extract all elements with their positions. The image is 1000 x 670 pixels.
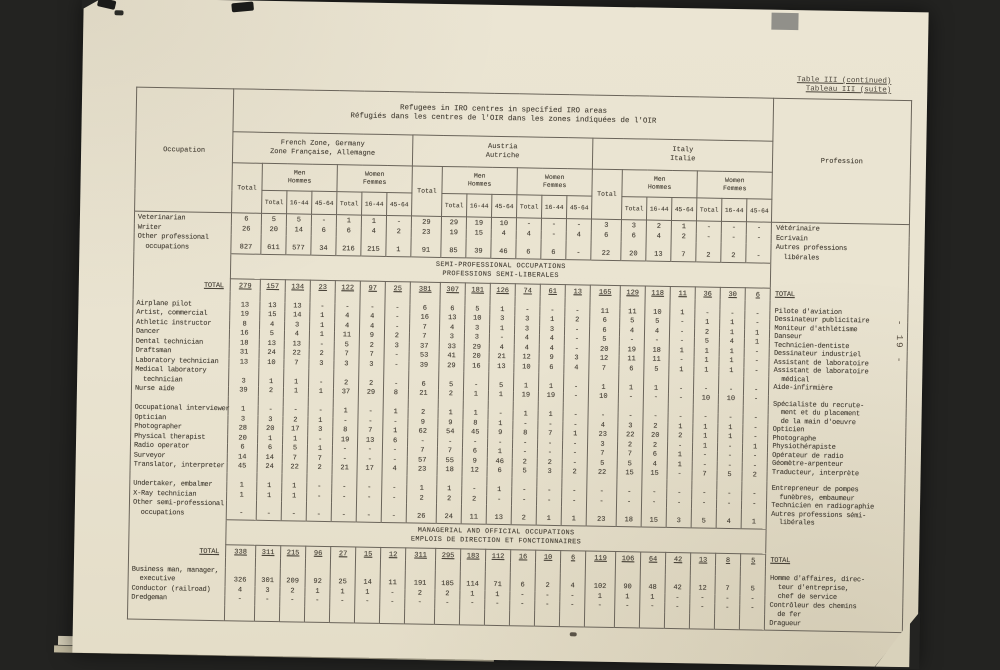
value-cell: 23 xyxy=(586,507,616,527)
value-cell: - xyxy=(585,602,615,612)
value-cell: 181 xyxy=(465,282,490,295)
value-cell: - xyxy=(380,598,405,608)
value-cell xyxy=(664,612,689,628)
value-cell: 42 xyxy=(665,574,690,593)
value-cell: 10 xyxy=(693,394,718,404)
value-cell: 5 xyxy=(617,460,642,470)
value-cell: 1 xyxy=(463,409,488,419)
value-cell: - xyxy=(405,598,435,608)
profession-cell: Vétérinaire Ecrivain Autres professions … xyxy=(771,222,910,265)
value-cell: 2 xyxy=(565,316,590,326)
value-cell: 8 xyxy=(333,426,358,436)
value-cell: 2 xyxy=(283,416,308,426)
value-cell: 23 xyxy=(310,280,335,293)
value-cell: - xyxy=(586,497,616,507)
women-group-header: Women Femmes xyxy=(337,165,412,193)
value-cell: 39 xyxy=(466,238,491,257)
value-cell: - xyxy=(566,240,591,259)
value-cell: 12 xyxy=(690,575,715,594)
value-cell xyxy=(459,609,484,625)
value-cell: - xyxy=(562,440,587,450)
value-cell: 6 xyxy=(642,450,667,460)
value-cell: - xyxy=(718,414,743,424)
value-cell: - xyxy=(742,490,767,500)
value-cell: 96 xyxy=(306,546,331,559)
value-cell: - xyxy=(489,334,514,344)
value-cell: 7 xyxy=(692,470,717,480)
value-cell: 16 xyxy=(464,362,489,372)
value-cell: 91 xyxy=(411,237,441,257)
value-cell: 5 xyxy=(740,553,766,566)
value-cell: 1 xyxy=(485,590,510,600)
value-cell: 338 xyxy=(226,544,256,558)
value-cell: 1 xyxy=(257,482,282,492)
value-cell: 5 xyxy=(438,371,463,390)
value-cell: 1 xyxy=(227,491,257,501)
value-cell: 12 xyxy=(381,547,406,560)
value-cell: - xyxy=(744,367,769,377)
value-cell xyxy=(590,298,620,308)
value-cell: 157 xyxy=(260,279,285,292)
value-cell: 3 xyxy=(618,422,643,432)
value-cell: - xyxy=(358,417,383,427)
value-cell: - xyxy=(357,484,382,494)
value-cell: 14 xyxy=(286,226,311,236)
value-cell: - xyxy=(641,498,666,508)
value-cell: 6 xyxy=(487,467,512,477)
value-cell xyxy=(330,559,355,569)
value-cell: 42 xyxy=(665,552,690,565)
value-cell: 19 xyxy=(441,228,466,238)
value-cell: 7 xyxy=(715,575,740,594)
value-cell: - xyxy=(696,233,721,243)
refugee-statistics-table: Occupation Refugees in IRO centres in sp… xyxy=(127,87,912,633)
value-cell: 183 xyxy=(461,548,486,561)
value-cell: - xyxy=(746,222,772,234)
value-cell: 1 xyxy=(538,373,563,392)
value-cell: - xyxy=(305,597,330,607)
value-cell: 1 xyxy=(588,374,618,394)
value-cell: 2 xyxy=(562,468,587,478)
value-cell: 4 xyxy=(360,313,385,323)
value-cell xyxy=(695,299,720,309)
value-cell: 1 xyxy=(437,485,462,495)
value-cell: 4 xyxy=(646,232,671,242)
value-cell xyxy=(335,293,360,303)
value-cell: 1 xyxy=(258,434,283,444)
value-cell: - xyxy=(615,602,640,612)
value-cell xyxy=(689,613,714,629)
value-cell: 1 xyxy=(693,432,718,442)
value-cell: 1 xyxy=(513,372,538,391)
value-cell: 3 xyxy=(464,333,489,343)
value-cell: 13 xyxy=(358,436,383,446)
value-cell: 14 xyxy=(227,453,257,463)
zone-header-italy: Italy Italie xyxy=(592,138,773,172)
value-cell xyxy=(357,474,382,484)
value-cell: 1 xyxy=(310,321,335,331)
value-cell: 21 xyxy=(408,389,438,399)
value-cell: - xyxy=(563,392,588,402)
value-cell: 1 xyxy=(355,588,380,598)
value-cell: 46 xyxy=(487,457,512,467)
value-cell: - xyxy=(332,445,357,455)
value-cell: 4 xyxy=(225,586,255,596)
value-cell: 11 xyxy=(620,308,645,318)
value-cell: 25 xyxy=(330,569,355,588)
value-cell: 1 xyxy=(669,365,694,375)
value-cell: 12 xyxy=(462,466,487,476)
value-cell xyxy=(333,398,358,408)
value-cell: 3 xyxy=(285,321,310,331)
value-cell: - xyxy=(565,307,590,317)
value-cell: 10 xyxy=(588,393,618,403)
value-cell: 3 xyxy=(308,426,333,436)
value-cell: 48 xyxy=(640,574,665,593)
value-cell: 13 xyxy=(229,358,259,368)
age-col-header: Total xyxy=(337,192,362,215)
men-group-header: Men Hommes xyxy=(622,170,697,198)
age-col-header: Total xyxy=(696,198,721,221)
value-cell: 1 xyxy=(305,587,330,597)
value-cell: - xyxy=(513,420,538,430)
value-cell: - xyxy=(383,370,408,389)
value-cell: 1 xyxy=(694,347,719,357)
value-cell: 10 xyxy=(535,550,560,563)
value-cell: - xyxy=(717,490,742,500)
value-cell: - xyxy=(563,373,588,392)
value-cell: 2 xyxy=(334,369,359,388)
value-cell: - xyxy=(358,408,383,418)
value-cell: 22 xyxy=(587,469,617,479)
value-cell: 23 xyxy=(588,431,618,441)
value-cell: 2 xyxy=(721,243,746,262)
value-cell: 7 xyxy=(334,350,359,360)
value-cell: - xyxy=(462,485,487,495)
value-cell xyxy=(254,605,279,621)
value-cell: 27 xyxy=(331,546,356,559)
value-cell: 7 xyxy=(284,359,309,369)
value-cell: - xyxy=(618,412,643,422)
value-cell: - xyxy=(743,395,768,405)
value-cell: 2 xyxy=(408,408,438,418)
age-col-header: 16-44 xyxy=(287,191,312,214)
value-cell: 13 xyxy=(259,339,284,349)
value-cell: 28 xyxy=(228,424,258,434)
value-cell: 13 xyxy=(230,301,260,311)
value-cell: - xyxy=(255,596,280,606)
value-cell: 1 xyxy=(259,368,284,387)
value-cell: 3 xyxy=(666,508,691,527)
value-cell: - xyxy=(717,461,742,471)
value-cell: 5 xyxy=(620,317,645,327)
value-cell xyxy=(643,403,668,413)
value-cell: 62 xyxy=(408,427,438,437)
value-cell: - xyxy=(535,601,560,611)
value-cell: 1 xyxy=(694,356,719,366)
value-cell xyxy=(718,404,743,414)
value-cell: 3 xyxy=(621,220,646,232)
value-cell: 114 xyxy=(460,571,485,590)
value-cell xyxy=(465,295,490,305)
value-cell: 4 xyxy=(334,322,359,332)
value-cell: - xyxy=(667,470,692,480)
value-cell xyxy=(618,403,643,413)
value-cell: - xyxy=(516,218,541,230)
value-cell: - xyxy=(435,599,460,609)
value-cell: 2 xyxy=(461,495,486,505)
value-cell: 15 xyxy=(642,469,667,479)
value-cell: - xyxy=(487,438,512,448)
value-cell xyxy=(405,560,435,570)
value-cell: - xyxy=(385,313,410,323)
value-cell: - xyxy=(332,455,357,465)
value-cell: 1 xyxy=(284,368,309,387)
value-cell: 5 xyxy=(740,576,766,595)
value-cell: 33 xyxy=(439,342,464,352)
value-cell: 22 xyxy=(284,349,309,359)
value-cell xyxy=(355,560,380,570)
value-cell: 4 xyxy=(489,343,514,353)
value-cell: - xyxy=(744,357,769,367)
value-cell: 381 xyxy=(410,281,440,295)
value-cell: 3 xyxy=(359,360,384,370)
page-curl-fold xyxy=(875,621,910,668)
value-cell: 7 xyxy=(437,447,462,457)
value-cell: - xyxy=(335,303,360,313)
value-cell: - xyxy=(667,441,692,451)
value-cell: - xyxy=(564,335,589,345)
value-cell xyxy=(410,294,440,304)
value-cell: 1 xyxy=(540,316,565,326)
value-cell: 6 xyxy=(539,363,564,373)
value-cell: - xyxy=(619,336,644,346)
value-cell: 122 xyxy=(335,280,360,293)
value-cell: 2 xyxy=(438,390,463,400)
value-cell: - xyxy=(668,394,693,404)
photo-artifact xyxy=(231,2,254,13)
value-cell xyxy=(535,563,560,573)
value-cell: - xyxy=(665,593,690,603)
value-cell: 6 xyxy=(541,240,566,259)
value-cell xyxy=(510,562,535,572)
value-cell: - xyxy=(541,218,566,230)
value-cell xyxy=(640,564,665,574)
value-cell: 1 xyxy=(719,366,744,376)
value-cell: 6 xyxy=(745,287,771,300)
value-cell xyxy=(308,397,333,407)
value-cell: - xyxy=(309,369,334,388)
value-cell: 9 xyxy=(539,354,564,364)
value-cell: 1 xyxy=(718,433,743,443)
value-cell xyxy=(614,612,639,628)
value-cell: 8 xyxy=(463,419,488,429)
value-cell: 3 xyxy=(228,415,258,425)
value-cell: 5 xyxy=(587,459,617,469)
value-cell: - xyxy=(407,437,437,447)
value-cell: 9 xyxy=(488,429,513,439)
age-col-header: Total xyxy=(517,195,542,218)
value-cell xyxy=(440,295,465,305)
value-cell: 30 xyxy=(720,287,745,300)
value-cell xyxy=(645,299,670,309)
value-cell: - xyxy=(310,302,335,312)
value-cell: - xyxy=(692,451,717,461)
value-cell: - xyxy=(360,303,385,313)
value-cell: - xyxy=(384,322,409,332)
value-cell: - xyxy=(665,603,690,613)
value-cell: 4 xyxy=(284,330,309,340)
value-cell: 2 xyxy=(742,471,767,481)
value-cell: 5 xyxy=(644,365,669,375)
value-cell: 118 xyxy=(645,286,670,299)
value-cell: 13 xyxy=(284,340,309,350)
value-cell: 5 xyxy=(465,305,490,315)
value-cell: 2 xyxy=(617,441,642,451)
value-cell xyxy=(642,479,667,489)
value-cell: 3 xyxy=(439,333,464,343)
value-cell: - xyxy=(311,214,336,226)
men-group-header: Men Hommes xyxy=(442,166,517,194)
value-cell: 39 xyxy=(228,386,258,396)
occupation-cell: Business man, manager, executive xyxy=(128,565,225,586)
occupation-cell xyxy=(133,252,230,279)
value-cell: 1 xyxy=(487,486,512,496)
value-cell: 1 xyxy=(667,451,692,461)
photo-artifact-tab xyxy=(771,13,798,30)
value-cell: 18 xyxy=(229,339,259,349)
value-cell: 827 xyxy=(231,234,261,254)
value-cell: 16 xyxy=(229,329,259,339)
value-cell: 2 xyxy=(307,464,332,474)
photo-artifact xyxy=(114,10,123,15)
value-cell: 1 xyxy=(463,390,488,400)
value-cell: 119 xyxy=(585,551,615,565)
value-cell: 2 xyxy=(405,589,435,599)
value-cell xyxy=(383,398,408,408)
value-cell: 1 xyxy=(487,448,512,458)
value-cell: 85 xyxy=(441,238,466,257)
value-cell: 1 xyxy=(488,391,513,401)
age-col-header: 16-44 xyxy=(646,197,671,220)
value-cell: - xyxy=(716,499,741,509)
photo-background: Table III (continued) Tableau III (suite… xyxy=(0,0,1000,670)
value-cell: 11 xyxy=(670,286,695,299)
value-cell xyxy=(670,299,695,309)
value-cell: 57 xyxy=(407,456,437,466)
value-cell: 1 xyxy=(538,411,563,421)
value-cell xyxy=(715,566,740,576)
value-cell: 6 xyxy=(590,317,620,327)
value-cell: 4 xyxy=(716,509,741,528)
value-cell: 11 xyxy=(380,569,405,588)
value-cell: 2 xyxy=(643,422,668,432)
value-cell: 1 xyxy=(668,422,693,432)
value-cell: 13 xyxy=(646,242,671,261)
age-col-header: 45-64 xyxy=(671,197,696,220)
value-cell xyxy=(515,296,540,306)
value-cell: - xyxy=(385,303,410,313)
profession-cell xyxy=(766,529,904,556)
value-cell xyxy=(230,291,260,301)
value-cell: 22 xyxy=(282,463,307,473)
occupation-cell: Medical laboratory technician xyxy=(132,366,229,387)
value-cell: - xyxy=(669,327,694,337)
value-cell: 17 xyxy=(357,465,382,475)
value-cell xyxy=(279,606,304,622)
value-cell: - xyxy=(669,356,694,366)
value-cell: - xyxy=(510,591,535,601)
value-cell: 7 xyxy=(617,450,642,460)
value-cell: - xyxy=(355,597,380,607)
value-cell: - xyxy=(742,462,767,472)
value-cell: 12 xyxy=(514,353,539,363)
value-cell: 5 xyxy=(488,372,513,391)
value-cell: - xyxy=(742,452,767,462)
age-col-header: Total xyxy=(262,190,287,213)
value-cell xyxy=(537,477,562,487)
value-cell: 1 xyxy=(310,312,335,322)
value-cell: - xyxy=(666,498,691,508)
value-cell: - xyxy=(308,407,333,417)
value-cell: 102 xyxy=(585,573,615,593)
value-cell: 3 xyxy=(539,325,564,335)
value-cell xyxy=(329,607,354,623)
value-cell: 21 xyxy=(489,353,514,363)
value-cell: - xyxy=(618,393,643,403)
value-cell: - xyxy=(690,594,715,604)
zone-header-french-zone: French Zone, Germany Zone Française, All… xyxy=(232,132,413,166)
value-cell xyxy=(690,565,715,575)
value-cell: - xyxy=(740,595,765,605)
value-cell xyxy=(282,473,307,483)
value-cell xyxy=(485,562,510,572)
value-cell: - xyxy=(280,596,305,606)
value-cell xyxy=(354,607,379,623)
value-cell: - xyxy=(717,442,742,452)
value-cell: 2 xyxy=(694,328,719,338)
value-cell: - xyxy=(721,221,746,233)
value-cell: - xyxy=(563,411,588,421)
value-cell xyxy=(720,300,745,310)
value-cell xyxy=(257,472,282,482)
value-cell: 3 xyxy=(514,325,539,335)
value-cell: - xyxy=(721,233,746,243)
table-body: Veterinarian655-11-29291910---3321---Vét… xyxy=(127,211,909,632)
value-cell: 5 xyxy=(645,318,670,328)
value-cell xyxy=(742,481,767,491)
value-cell: 6 xyxy=(621,232,646,242)
value-cell: - xyxy=(564,326,589,336)
value-cell: 13 xyxy=(489,362,514,372)
value-cell: 1 xyxy=(692,442,717,452)
value-cell: 1 xyxy=(361,215,386,227)
value-cell: 3 xyxy=(591,219,621,232)
value-cell: - xyxy=(643,394,668,404)
value-cell: - xyxy=(745,319,770,329)
value-cell: 1 xyxy=(490,305,515,315)
value-cell: 1 xyxy=(309,331,334,341)
value-cell: 185 xyxy=(435,570,460,589)
value-cell: 1 xyxy=(407,484,437,494)
value-cell: 9 xyxy=(462,457,487,467)
value-cell: - xyxy=(382,446,407,456)
value-cell: 19 xyxy=(513,391,538,401)
value-cell: 11 xyxy=(334,331,359,341)
value-cell: 1 xyxy=(513,410,538,420)
value-cell: - xyxy=(562,449,587,459)
value-cell: 2 xyxy=(668,432,693,442)
